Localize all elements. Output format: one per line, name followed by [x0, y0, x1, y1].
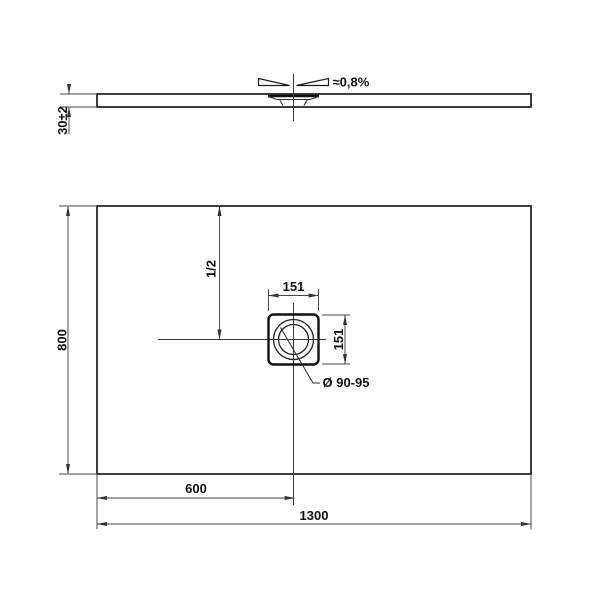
dim-drain-offset: 600 [97, 474, 295, 529]
dim-drain-height: 151 [322, 315, 350, 364]
slope-label: ≈0,8% [333, 75, 370, 90]
plan-view: Ø 90-95 151 151 1/2 800 [55, 206, 532, 529]
drain-diameter-leader [281, 328, 321, 384]
side-view: ≈0,8% 30±2 [55, 74, 531, 135]
technical-drawing: ≈0,8% 30±2 Ø 90-95 151 [0, 0, 600, 600]
dim-thickness-label: 30±2 [55, 106, 70, 135]
dim-width: 800 [55, 206, 98, 474]
dim-thickness: 30±2 [55, 85, 97, 135]
slope-wedge-right [297, 79, 329, 86]
dim-half: 1/2 [204, 206, 220, 340]
dim-length: 1300 [97, 474, 531, 529]
dim-width-label: 800 [55, 329, 70, 351]
dim-half-label: 1/2 [204, 260, 219, 278]
dim-drain-width-label: 151 [283, 279, 305, 294]
drawing-canvas: ≈0,8% 30±2 Ø 90-95 151 [0, 0, 600, 600]
drain-diameter-label: Ø 90-95 [323, 375, 370, 390]
dim-length-label: 1300 [300, 508, 329, 523]
slope-wedge-left [259, 79, 290, 86]
dim-drain-offset-label: 600 [185, 481, 207, 496]
dim-drain-height-label: 151 [331, 329, 346, 351]
